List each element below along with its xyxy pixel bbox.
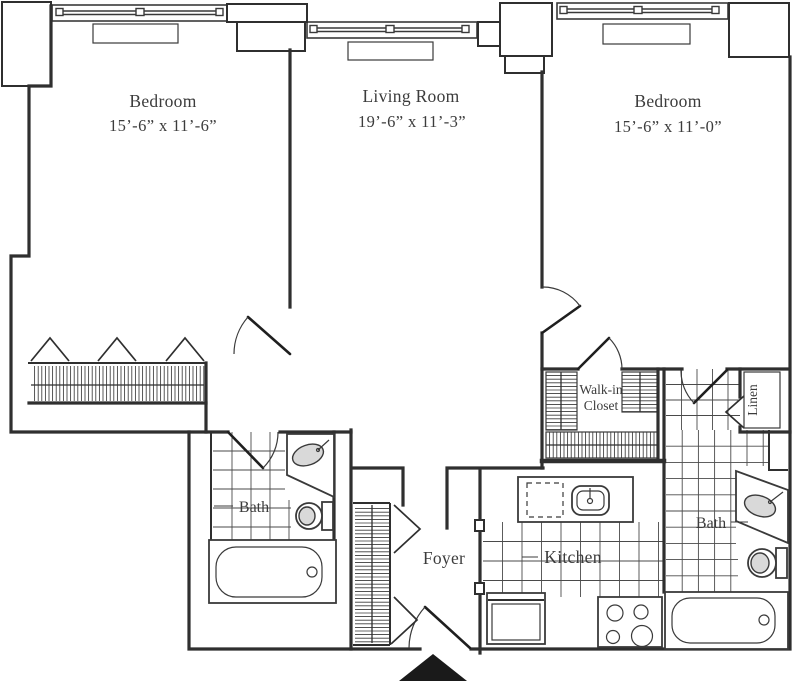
walkin-closet-door-leaf [578,338,609,369]
radiator-living-room [348,42,433,60]
linen-closet-bifold [726,396,744,428]
window-bedroom-right [557,3,728,19]
foyer-closet-bifold-top [394,505,420,553]
bath-left-fixtures [209,434,336,603]
corner-block-top-left [2,2,51,86]
pier-living-wing [478,22,500,46]
pier-living-bedroomright-step [505,56,544,73]
bedroom-right-dims: 15’-6” x 11’-0” [614,117,722,136]
bath-left-toilet-seat [299,507,315,525]
bedroom-left-dims: 15’-6” x 11’-6” [109,116,217,135]
bath-left-toilet-tank [322,502,333,530]
walkin-closet-label-line1: Walk-in [579,382,622,397]
bath-hall-floor-tiles [666,369,740,430]
bedroom-right-door-swing [542,287,580,306]
bedroom-right-door-leaf [542,306,580,333]
window-living-room [307,22,477,38]
linen-closet-label: Linen [745,384,760,416]
window-bedroom-left [52,5,227,21]
bath-right-label: Bath [696,515,726,532]
bath-right-toilet-seat [751,553,769,573]
bedroom-left-closet-shelf-hatch [35,366,204,401]
bedroom-left-closet-bifold-3 [166,338,204,361]
bedroom-left-door-swing [234,317,248,354]
bedroom-left-closet-bifold-1 [31,338,69,361]
bath-left-door-swing [263,432,278,468]
floor-plan: Bedroom 15’-6” x 11’-6” Living Room 19’-… [0,0,800,681]
pier-living-bedroomright [500,3,552,56]
bath-left-door-leaf [228,432,263,468]
entry-door-swing [409,607,425,648]
pier-bedroomleft-living-lower [237,22,305,51]
bath-hall-door-swing [681,370,694,403]
labels: Bedroom 15’-6” x 11’-6” Living Room 19’-… [109,86,760,568]
floor-plan-drawing: Bedroom 15’-6” x 11’-6” Living Room 19’-… [0,0,800,681]
walkin-closet-label-line2: Closet [584,398,619,413]
bedroom-right-label: Bedroom [634,91,701,111]
foyer-label: Foyer [423,548,465,568]
entry-marker-triangle [399,654,467,681]
bath-right-toilet-tank [776,548,787,578]
radiator-bedroom-right [603,24,690,44]
bedroom-left-label: Bedroom [129,91,196,111]
entry-door-leaf [425,607,470,648]
bath-hall-door-leaf [694,370,727,403]
walkin-closet-door-swing [609,338,622,369]
living-room-dims: 19’-6” x 11’-3” [358,112,466,131]
radiator-bedroom-left [93,24,178,43]
foyer-closet-bifold-bottom [391,597,417,644]
pier-bedroomleft-living-upper [227,4,307,22]
bedroom-left-closet-bifold-2 [98,338,136,361]
kitchen-label: Kitchen [544,547,602,567]
living-room-label: Living Room [362,86,459,106]
bedroom-left-door-leaf [248,317,290,354]
corner-block-top-right [729,3,789,57]
bath-left-label: Bath [239,499,269,516]
